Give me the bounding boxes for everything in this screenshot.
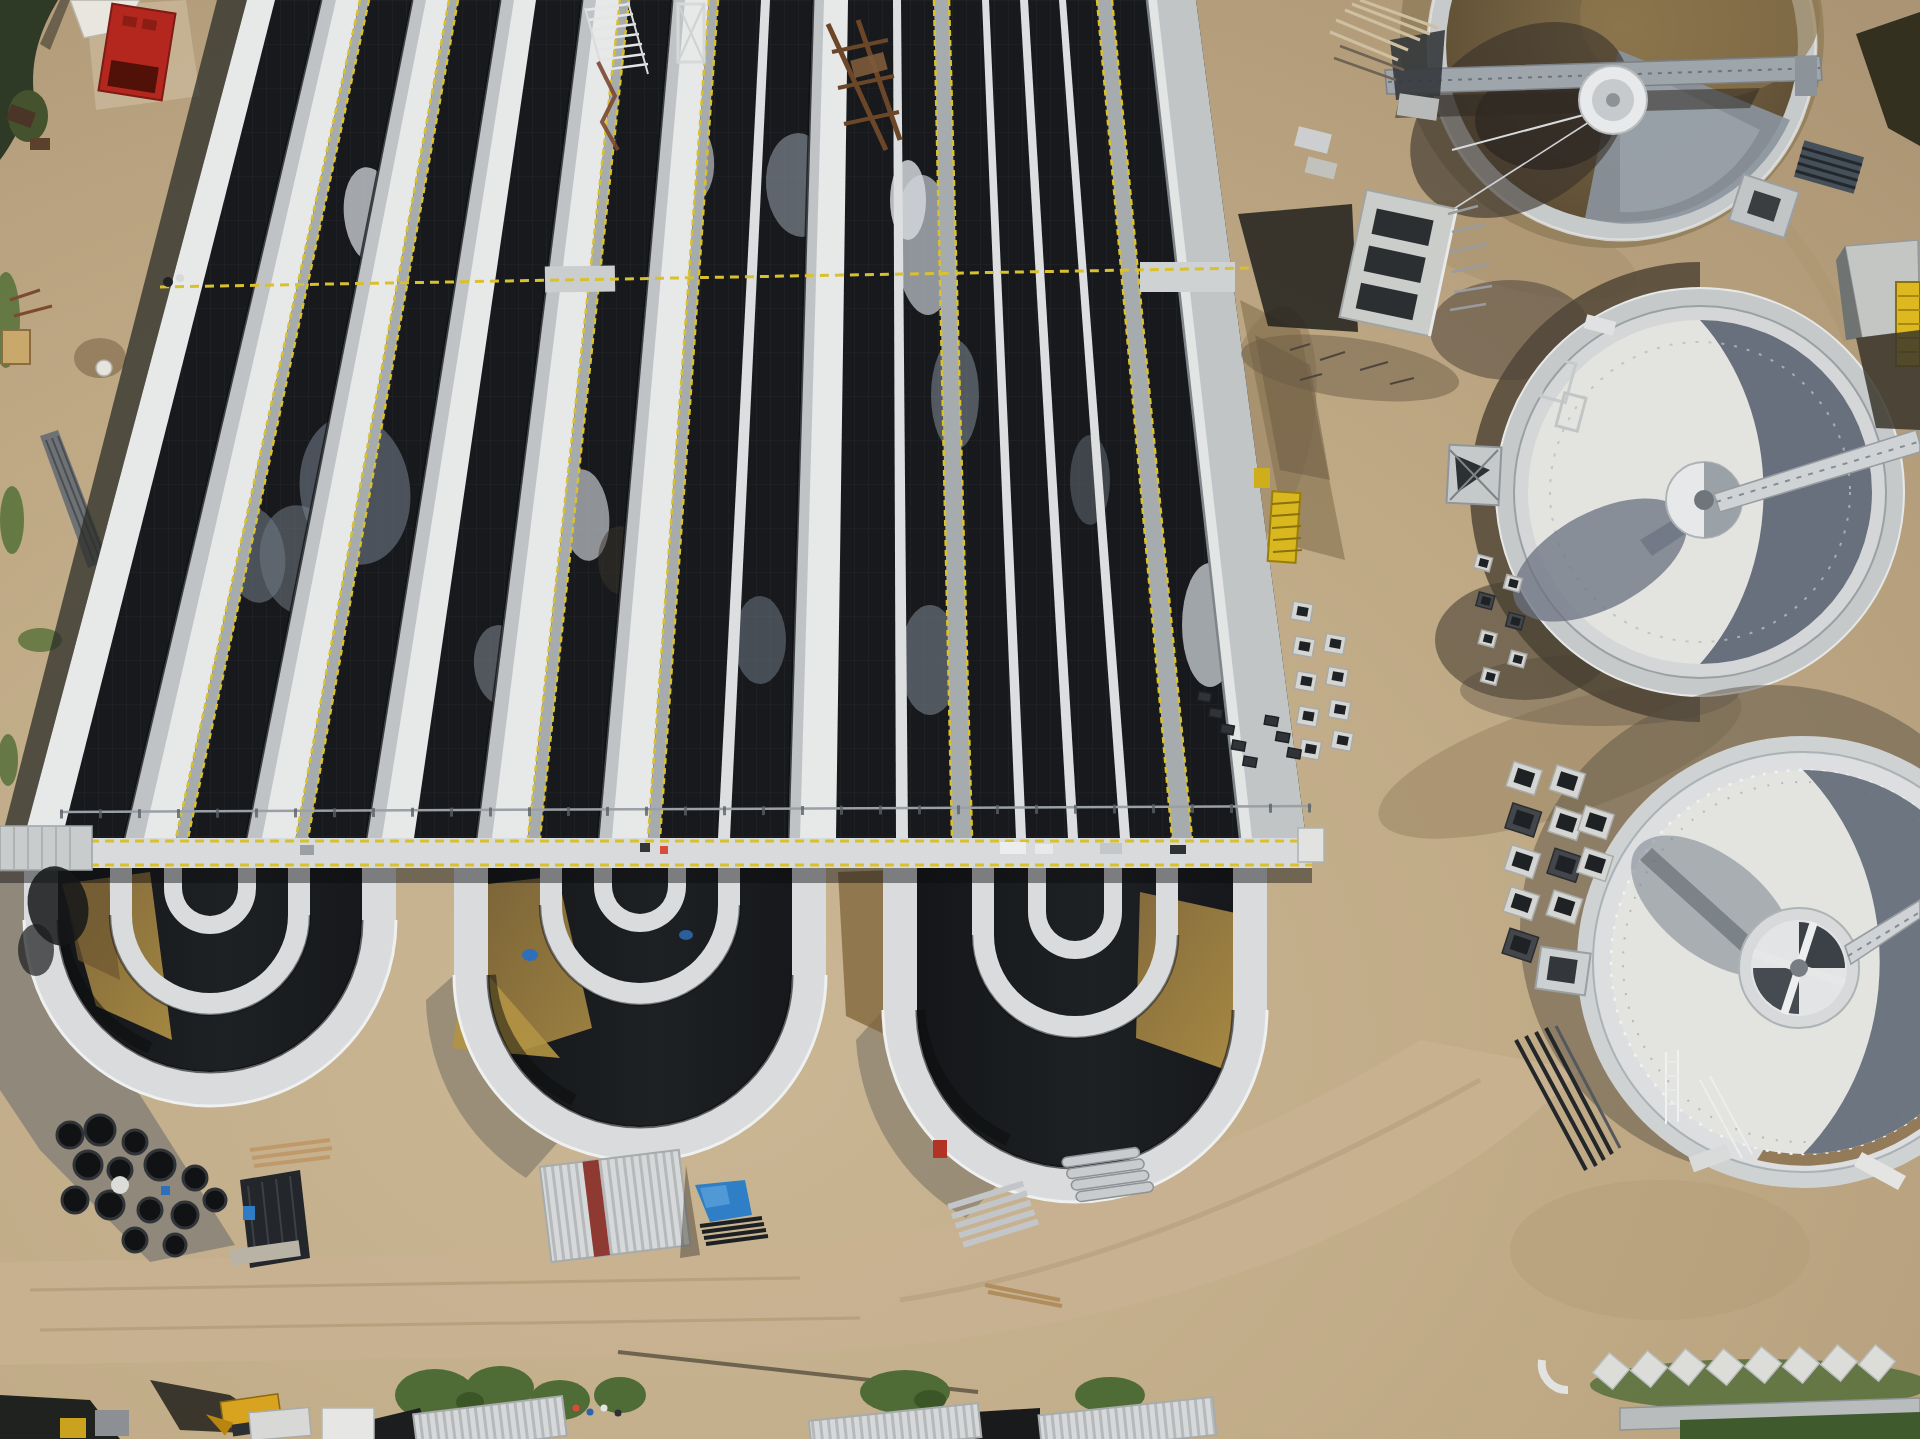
red-container xyxy=(99,4,176,101)
aeration-basins xyxy=(0,0,1306,868)
tank-feed-chamber xyxy=(1535,947,1590,996)
wooden-crate xyxy=(2,330,30,364)
white-truck xyxy=(249,1407,311,1439)
corrugated-shed xyxy=(540,1150,691,1262)
white-cabin xyxy=(322,1408,374,1439)
aerial-photo-stage: Aerial drone photograph of a wastewater … xyxy=(0,0,1920,1439)
tank-inlet-chamber xyxy=(1447,445,1502,506)
white-bucket xyxy=(96,360,112,376)
aerial-photo: Aerial drone photograph of a wastewater … xyxy=(0,0,1920,1439)
